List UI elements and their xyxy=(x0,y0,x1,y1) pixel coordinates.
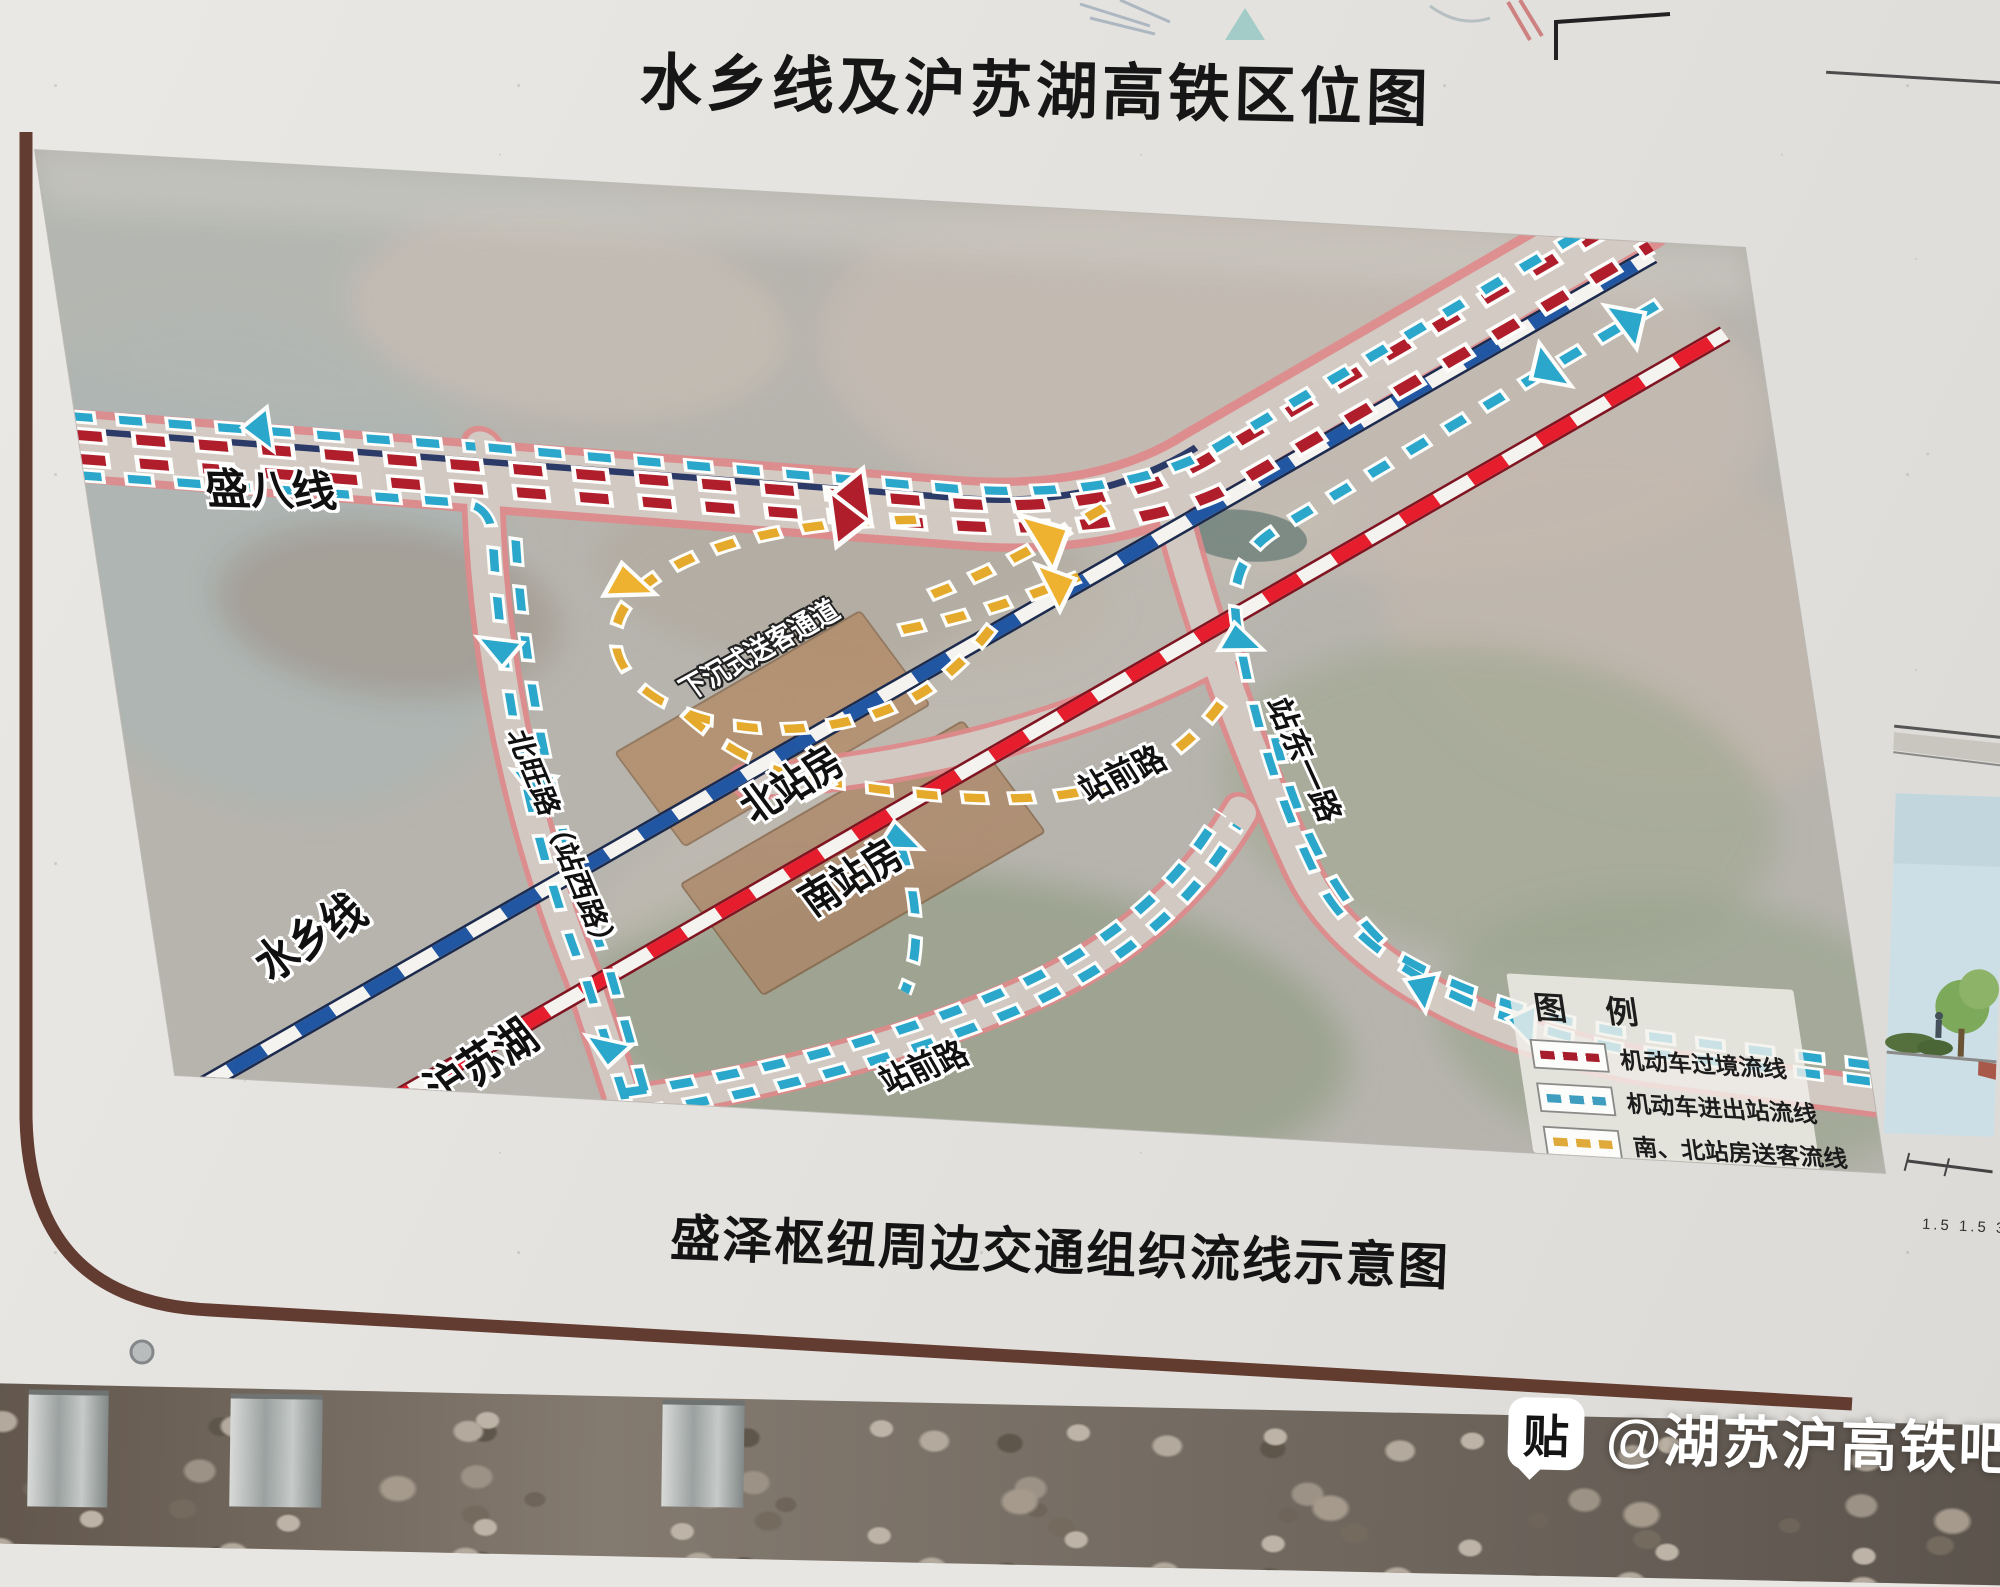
inout-flow-swatch xyxy=(1536,1082,1616,1116)
label-shengba-line: 盛八线 xyxy=(199,455,341,519)
section-person xyxy=(1935,1020,1942,1038)
legend-item-transit: 机动车过境流线 xyxy=(1529,1037,1808,1086)
top-edge-sketches xyxy=(1060,0,1700,70)
steel-post xyxy=(27,1389,109,1507)
cross-section-panel xyxy=(1877,688,2000,1232)
adjacent-panel-edge-line xyxy=(1826,71,2000,84)
steel-post xyxy=(229,1393,323,1507)
panel-screw xyxy=(131,1341,153,1363)
legend-item-label: 机动车过境流线 xyxy=(1618,1042,1789,1085)
steel-post xyxy=(661,1399,744,1507)
legend-item-inout: 机动车进出站流线 xyxy=(1536,1080,1815,1129)
section-dimension-text: 1.5 1.5 3 xyxy=(1922,1216,2000,1237)
tieba-icon: 贴 xyxy=(1507,1397,1585,1471)
legend-item-dropoff: 南、北站房送客流线 xyxy=(1542,1124,1821,1173)
watermark-text: @湖苏沪高铁吧 xyxy=(1605,1394,2000,1486)
transit-flow-swatch xyxy=(1529,1039,1609,1073)
legend-item-label: 机动车进出站流线 xyxy=(1624,1086,1819,1130)
map-caption: 盛泽枢纽周边交通组织流线示意图 xyxy=(669,1198,1451,1300)
dropoff-flow-swatch xyxy=(1543,1126,1623,1160)
traffic-map: 盛八线 水乡线 沪苏湖 北站房 南站房 下沉式送客通道 站前路 站前路 站东一路… xyxy=(35,150,1885,1173)
watermark: 贴 @湖苏沪高铁吧 xyxy=(1507,1392,2000,1486)
map-legend: 图 例 机动车过境流线 机动车进出站流线 南、北站房送客流线 xyxy=(1506,973,1820,1169)
legend-title: 图 例 xyxy=(1530,982,1801,1042)
